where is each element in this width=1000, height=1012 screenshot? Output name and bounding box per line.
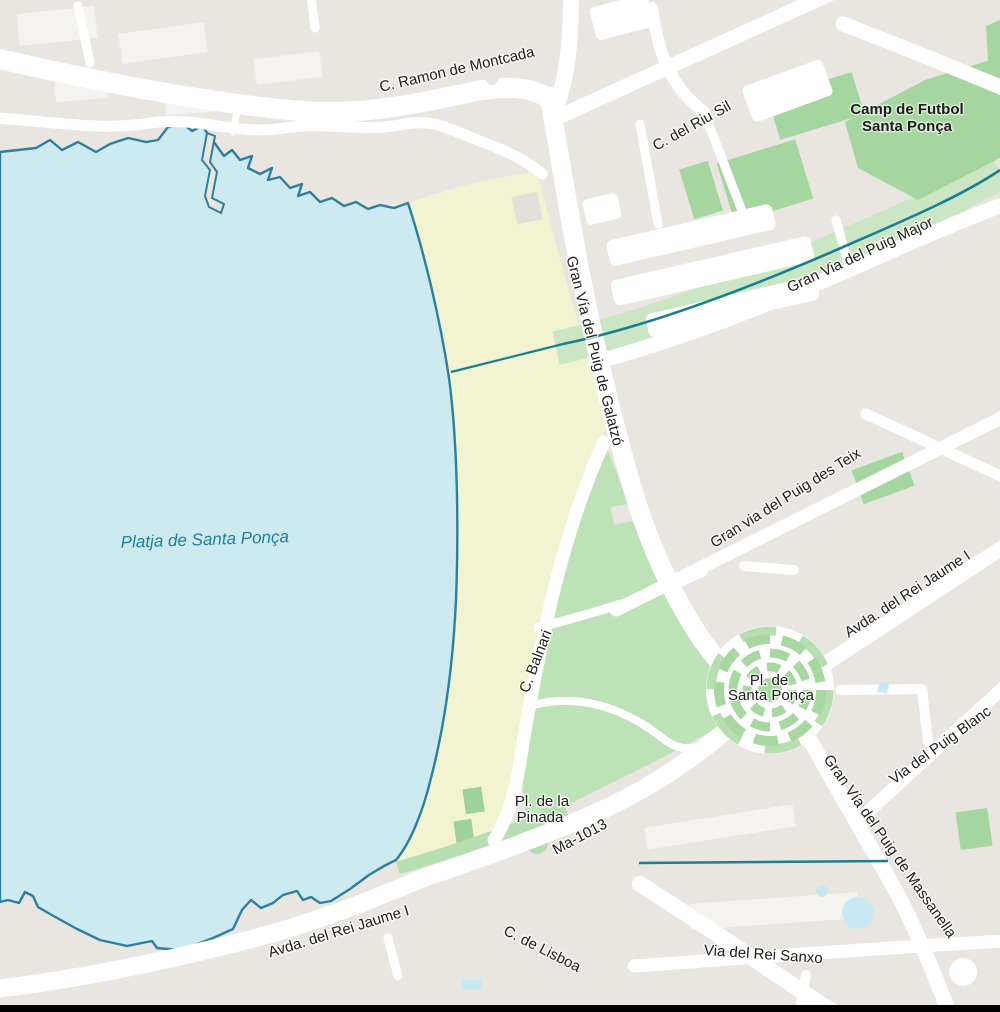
plaza-label-pinada-line2: Pinada bbox=[517, 809, 564, 826]
plaza-label-pinada-line1: Pl. de la bbox=[515, 793, 570, 810]
poi-label-camp-de-futbol-line2[interactable]: Santa Ponça bbox=[862, 118, 953, 135]
plaza-label-santa-ponca-line2: Santa Ponça bbox=[728, 687, 815, 704]
map-canvas[interactable]: C. Ramon de Montcada C. del Riu Sil Camp… bbox=[0, 0, 1000, 1012]
map-viewport[interactable]: C. Ramon de Montcada C. del Riu Sil Camp… bbox=[0, 0, 1000, 1012]
poi-label-camp-de-futbol-line1[interactable]: Camp de Futbol bbox=[850, 101, 963, 118]
bottom-edge-bar bbox=[0, 1005, 1000, 1012]
